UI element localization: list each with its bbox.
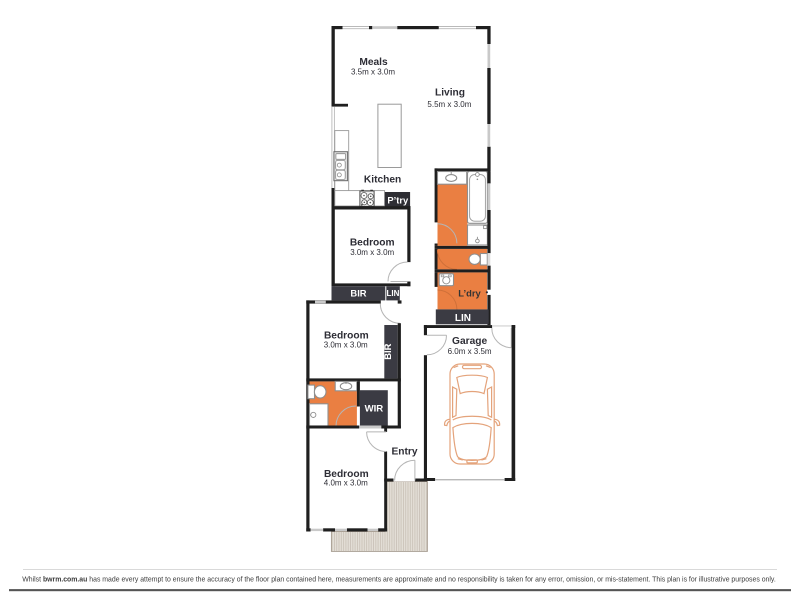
svg-text:Entry: Entry (391, 446, 417, 457)
svg-text:WIR: WIR (365, 403, 384, 414)
svg-text:Kitchen: Kitchen (364, 174, 401, 185)
svg-text:L’dry: L’dry (458, 287, 481, 298)
svg-text:BIR: BIR (382, 343, 393, 359)
svg-text:P’try: P’try (387, 195, 409, 206)
svg-text:3.0m x 3.0m: 3.0m x 3.0m (324, 340, 368, 349)
svg-text:Garage: Garage (452, 336, 487, 347)
svg-text:4.0m x 3.0m: 4.0m x 3.0m (324, 478, 368, 487)
svg-text:6.0m x 3.5m: 6.0m x 3.5m (448, 347, 492, 356)
svg-text:3.5m x 3.0m: 3.5m x 3.0m (351, 68, 395, 77)
svg-text:5.5m x 3.0m: 5.5m x 3.0m (427, 100, 471, 109)
svg-text:Whilst bwrm.com.au has made ev: Whilst bwrm.com.au has made every attemp… (22, 576, 776, 583)
svg-text:BIR: BIR (350, 288, 366, 299)
svg-text:Living: Living (435, 88, 465, 99)
svg-text:LIN: LIN (387, 289, 400, 298)
svg-text:Bedroom: Bedroom (350, 238, 395, 249)
svg-text:LIN: LIN (455, 313, 471, 324)
svg-text:Meals: Meals (359, 57, 388, 68)
svg-text:3.0m x 3.0m: 3.0m x 3.0m (350, 248, 394, 257)
